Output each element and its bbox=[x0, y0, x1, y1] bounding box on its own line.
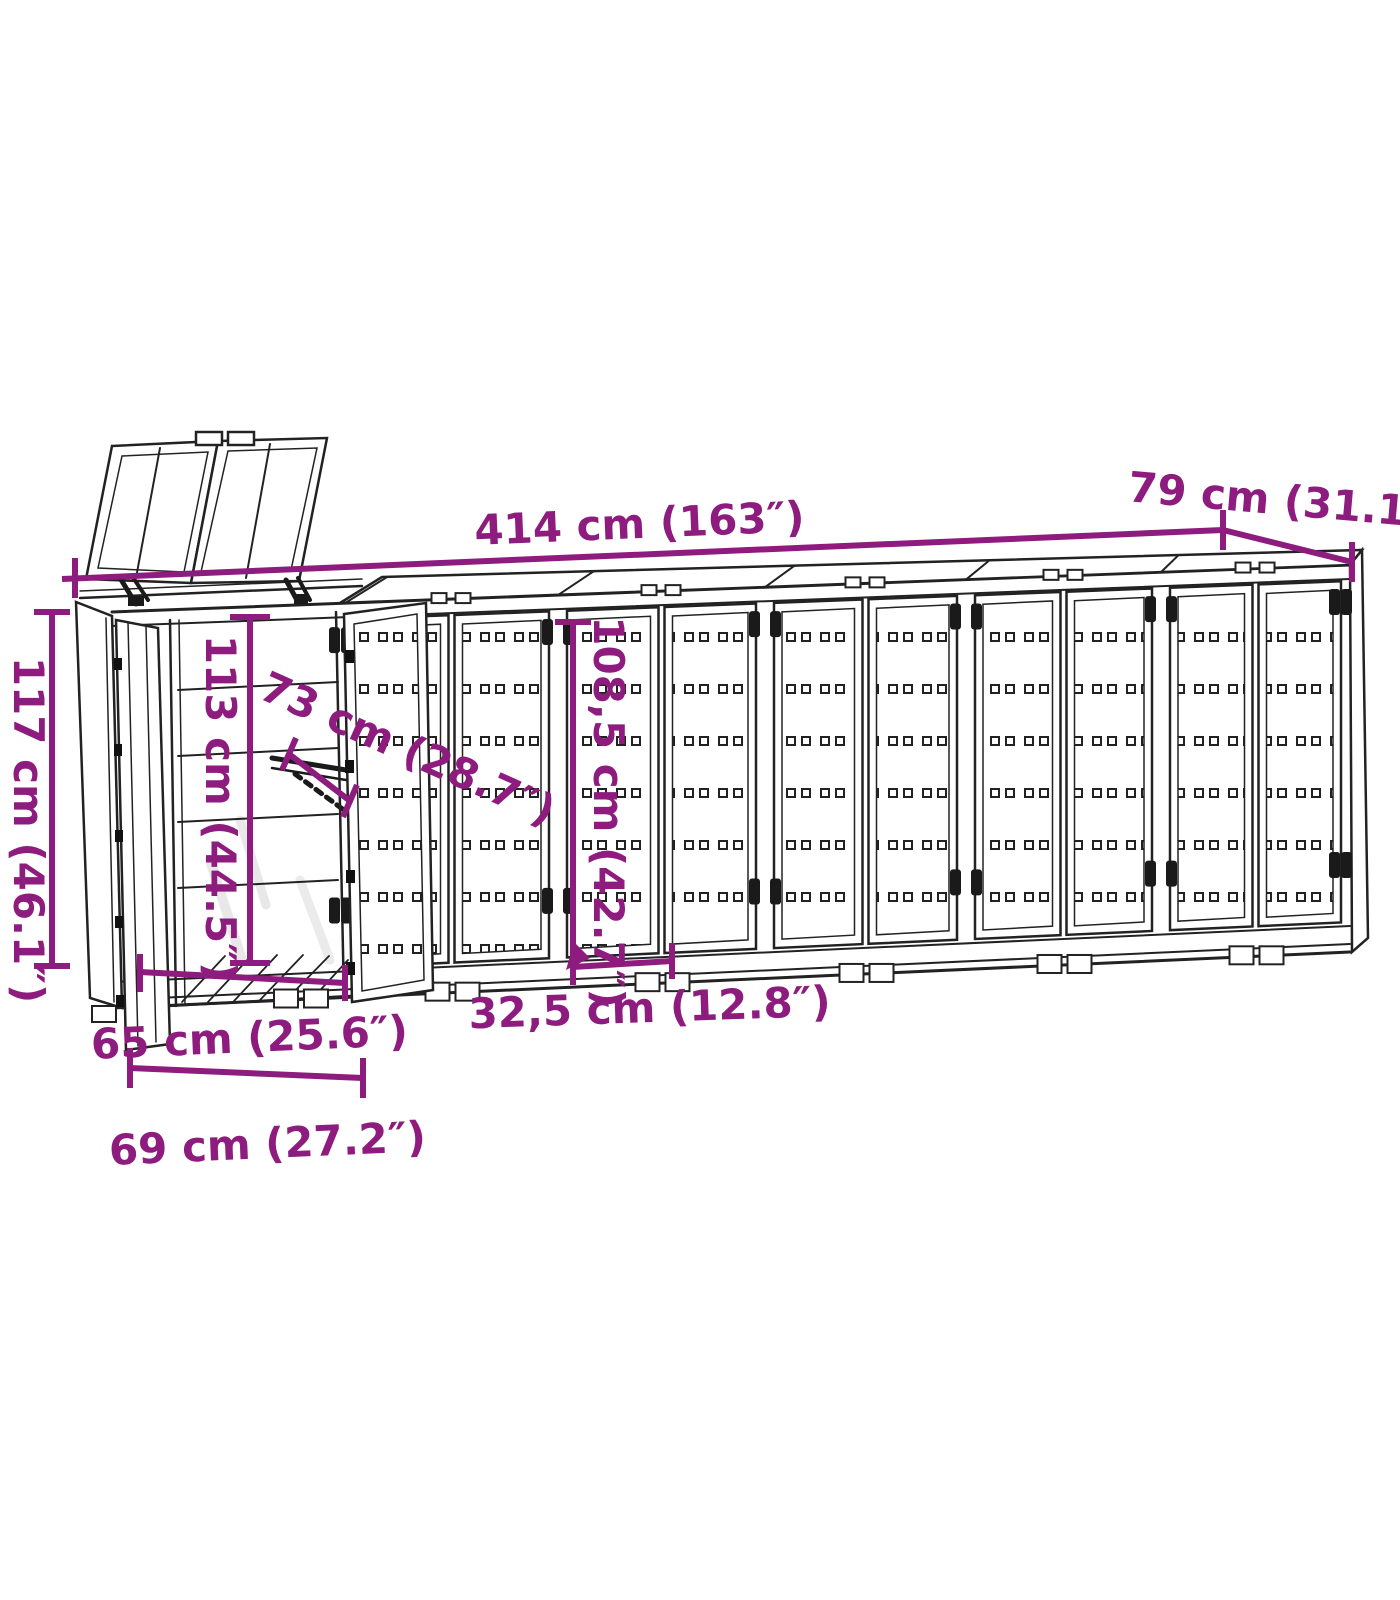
hinge bbox=[950, 604, 961, 630]
dim-label-door-height: 108,5 cm (42.7″) bbox=[584, 616, 633, 1008]
hinge bbox=[770, 878, 781, 904]
lid-hinge-bracket bbox=[1044, 570, 1059, 580]
lid-hinge-bracket bbox=[1068, 570, 1083, 580]
back-top-rail bbox=[80, 586, 362, 598]
hinge bbox=[1341, 852, 1352, 878]
foot bbox=[304, 990, 328, 1008]
dim-label-door-width: 32,5 cm (12.8″) bbox=[468, 977, 832, 1039]
lid-hinge-bracket bbox=[456, 593, 471, 603]
hinge bbox=[542, 888, 553, 914]
hinge bbox=[971, 604, 982, 630]
foot bbox=[274, 990, 298, 1008]
lid-handle bbox=[196, 432, 222, 445]
lid-hinge-bracket bbox=[666, 585, 681, 595]
open-compartment-interior bbox=[168, 612, 352, 1006]
lid-hinge-bracket bbox=[432, 593, 447, 603]
lid-hinge-bracket bbox=[1260, 563, 1275, 573]
hinge bbox=[749, 611, 760, 637]
lid-handle bbox=[228, 432, 254, 445]
lid-hinge-bracket bbox=[1236, 563, 1251, 573]
product-dimension-diagram: 414 cm (163″) 79 cm (31.1″) 117 cm (46.1… bbox=[0, 0, 1400, 1600]
hinge bbox=[1341, 589, 1352, 615]
dim-label-inner-height: 113 cm (44.5″) bbox=[196, 635, 245, 981]
lid-hinge-bracket bbox=[846, 577, 861, 587]
diagram-canvas: 414 cm (163″) 79 cm (31.1″) 117 cm (46.1… bbox=[0, 0, 1400, 1600]
open-lid bbox=[86, 432, 327, 606]
hinge bbox=[770, 611, 781, 637]
dim-label-outer-width: 69 cm (27.2″) bbox=[108, 1112, 427, 1175]
lid-hinge-bracket bbox=[642, 585, 657, 595]
hinge bbox=[1329, 589, 1340, 615]
foot bbox=[1230, 946, 1254, 964]
door-inner-frame bbox=[782, 608, 855, 939]
door-bays bbox=[274, 581, 1352, 1007]
hinge bbox=[542, 619, 553, 645]
door-inner-frame bbox=[1075, 597, 1145, 925]
dim-label-total-width: 414 cm (163″) bbox=[473, 492, 805, 555]
dim-label-total-depth: 79 cm (31.1″) bbox=[1126, 462, 1400, 538]
door-inner-frame bbox=[673, 613, 749, 944]
open-right-door bbox=[344, 603, 433, 1002]
right-side-panel bbox=[1350, 550, 1368, 952]
door-inner-frame bbox=[877, 605, 950, 935]
foot bbox=[840, 964, 864, 982]
hinge bbox=[749, 878, 760, 904]
hinge bbox=[329, 627, 340, 653]
hinge bbox=[1145, 861, 1156, 887]
door-inner-frame bbox=[1267, 590, 1334, 917]
hinge bbox=[1166, 596, 1177, 622]
foot bbox=[1038, 955, 1062, 973]
foot bbox=[1260, 946, 1284, 964]
foot bbox=[870, 964, 894, 982]
hinge bbox=[329, 897, 340, 923]
lid-hinge-bracket bbox=[870, 577, 885, 587]
hinge bbox=[950, 869, 961, 895]
door-inner-frame bbox=[1178, 594, 1245, 922]
foot bbox=[1068, 955, 1092, 973]
hinge bbox=[1145, 596, 1156, 622]
hinge bbox=[971, 869, 982, 895]
hinge bbox=[1329, 852, 1340, 878]
hinge bbox=[1166, 861, 1177, 887]
dim-label-total-height: 117 cm (46.1″) bbox=[4, 657, 53, 1003]
door-inner-frame bbox=[983, 601, 1053, 930]
